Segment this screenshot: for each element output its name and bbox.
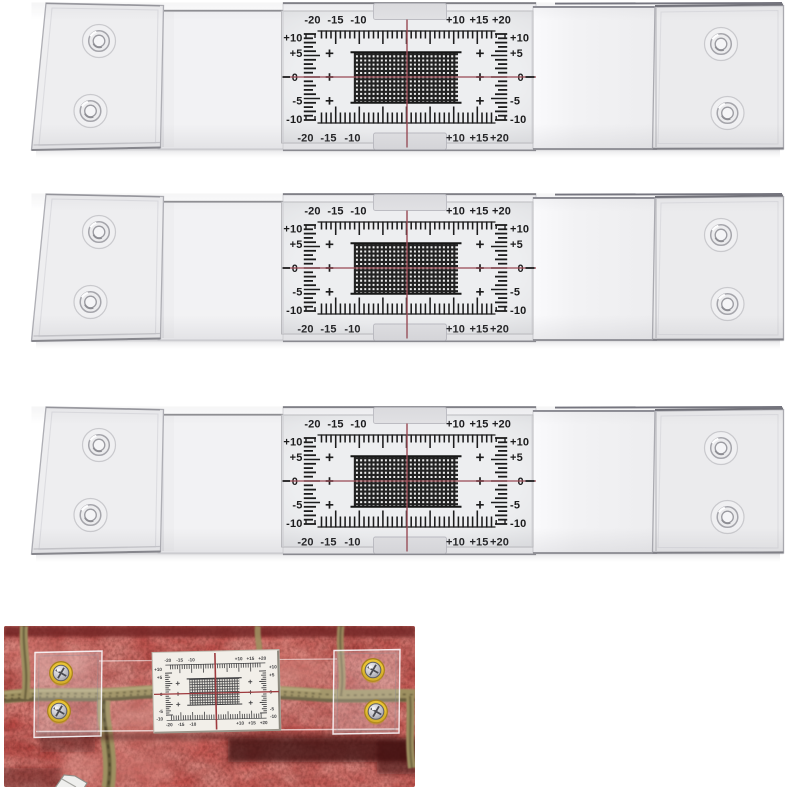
svg-text:-20: -20 — [164, 658, 171, 663]
svg-text:-10: -10 — [190, 722, 197, 727]
svg-text:+10: +10 — [154, 667, 162, 672]
svg-text:+15: +15 — [246, 656, 254, 661]
svg-text:+5: +5 — [269, 672, 275, 677]
svg-text:-10: -10 — [156, 716, 163, 721]
svg-text:+15: +15 — [248, 720, 256, 725]
svg-text:+20: +20 — [260, 720, 268, 725]
svg-text:+10: +10 — [269, 664, 277, 669]
svg-text:-10: -10 — [188, 657, 195, 662]
svg-text:+5: +5 — [157, 675, 163, 680]
svg-text:-5: -5 — [270, 706, 275, 711]
svg-text:-15: -15 — [176, 658, 183, 663]
svg-text:+10: +10 — [235, 656, 243, 661]
svg-text:-20: -20 — [166, 722, 173, 727]
svg-text:-10: -10 — [270, 714, 277, 719]
svg-text:+20: +20 — [258, 656, 266, 661]
svg-text:-5: -5 — [159, 709, 164, 714]
svg-text:-15: -15 — [178, 722, 185, 727]
svg-text:+10: +10 — [236, 721, 244, 726]
